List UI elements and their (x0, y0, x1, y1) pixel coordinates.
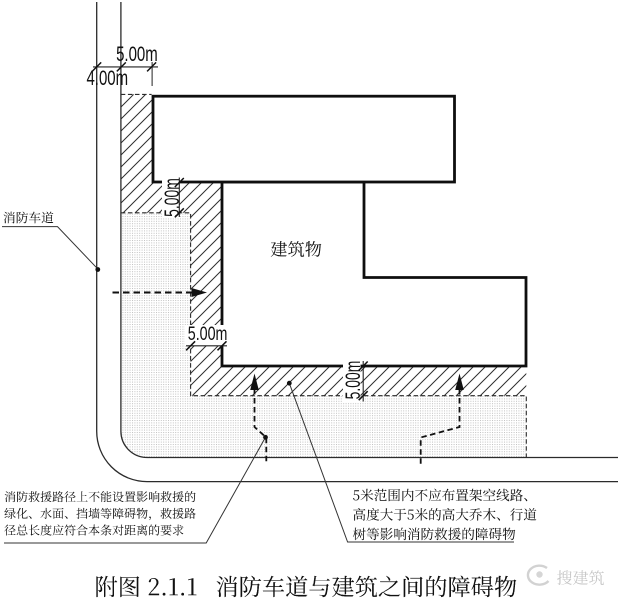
svg-text:5.00m: 5.00m (160, 178, 184, 217)
svg-text:5.00m: 5.00m (188, 323, 228, 345)
svg-text:4.00m: 4.00m (86, 65, 128, 89)
svg-text:5.00m: 5.00m (116, 41, 158, 65)
svg-text:5.00m: 5.00m (341, 361, 365, 400)
